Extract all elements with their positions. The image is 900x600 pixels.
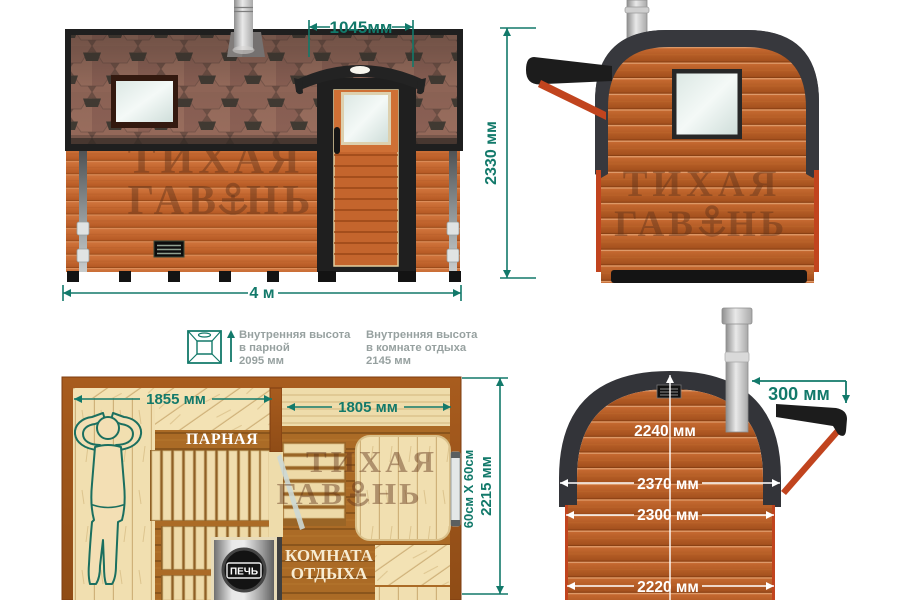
svg-text:в парной: в парной [239,342,290,354]
svg-text:ГАВ: ГАВ [128,178,221,224]
svg-text:КОМНАТА: КОМНАТА [285,546,374,565]
svg-text:60см X 60см: 60см X 60см [461,450,476,529]
svg-text:ТИХАЯ: ТИХАЯ [623,164,782,205]
svg-text:НЬ: НЬ [246,178,314,224]
svg-text:ГАВ: ГАВ [277,476,345,511]
svg-text:2330 мм: 2330 мм [483,121,500,185]
svg-text:ОТДЫХА: ОТДЫХА [291,564,368,583]
svg-text:ГАВ: ГАВ [614,204,697,245]
svg-text:Внутренняя высота: Внутренняя высота [366,329,478,341]
svg-text:2220 мм: 2220 мм [637,579,699,596]
svg-text:1045мм: 1045мм [330,18,393,37]
svg-text:1805 мм: 1805 мм [338,399,398,416]
svg-text:в комнате отдыха: в комнате отдыха [366,342,467,354]
svg-text:2370 мм: 2370 мм [637,476,699,493]
svg-text:ТИХАЯ: ТИХАЯ [306,444,438,479]
svg-text:НЬ: НЬ [727,204,788,245]
svg-text:2145 мм: 2145 мм [366,355,411,367]
svg-text:ПАРНАЯ: ПАРНАЯ [186,431,258,448]
svg-text:4 м: 4 м [249,285,274,302]
svg-text:2300 мм: 2300 мм [637,507,699,524]
svg-text:НЬ: НЬ [372,476,423,511]
svg-text:ПЕЧЬ: ПЕЧЬ [230,567,258,578]
svg-text:Внутренняя высота: Внутренняя высота [239,329,351,341]
svg-text:300 мм: 300 мм [768,384,830,404]
svg-text:2095 мм: 2095 мм [239,355,284,367]
svg-text:2215 мм: 2215 мм [478,456,495,516]
svg-text:2240 мм: 2240 мм [634,423,696,440]
svg-text:1855 мм: 1855 мм [146,391,206,408]
